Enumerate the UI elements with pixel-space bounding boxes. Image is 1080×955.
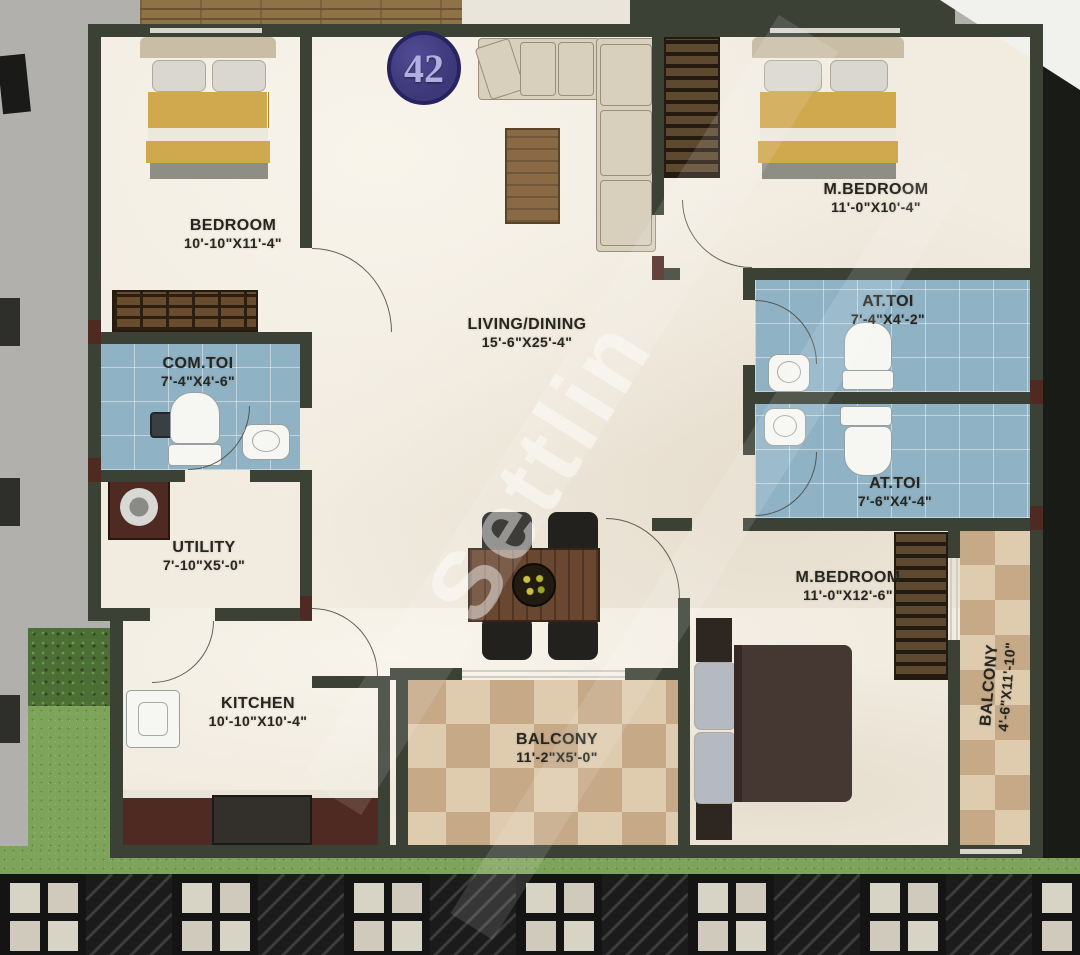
wall-utility-bottom-a xyxy=(110,608,150,621)
left-wall-stub xyxy=(0,478,20,526)
bed-sheet-stripe xyxy=(148,128,268,141)
wall-right xyxy=(1030,24,1043,858)
wall-corridor-toilets-a xyxy=(743,268,755,300)
room-dims: 11'-0"X10'-4" xyxy=(824,199,929,215)
pillow xyxy=(830,60,888,92)
shrub xyxy=(28,628,120,710)
coffee-table xyxy=(505,128,560,224)
top-light-strip xyxy=(462,0,630,24)
kitchen-counter-left xyxy=(122,798,212,845)
right-exterior-shadow xyxy=(1043,0,1080,858)
bed-blanket xyxy=(146,141,270,163)
bed-headboard xyxy=(696,618,732,662)
table-centerpiece xyxy=(512,563,556,607)
bed-blanket xyxy=(148,92,269,128)
room-label-bedroom: BEDROOM 10'-10"X11'-4" xyxy=(184,217,282,251)
room-name: M.BEDROOM xyxy=(796,569,901,587)
floor-plan: BEDROOM 10'-10"X11'-4" LIVING/DINING 15'… xyxy=(0,0,1080,955)
room-label-kitchen: KITCHEN 10'-10"X10'-4" xyxy=(209,695,308,729)
bed-footer xyxy=(150,163,268,179)
pillow xyxy=(694,662,736,730)
column-marker xyxy=(88,458,101,482)
wall-corridor-toilets-b xyxy=(743,365,755,455)
sofa-cushion xyxy=(600,44,652,106)
column-marker xyxy=(1030,506,1043,530)
wall-mbedbottom-top-stub xyxy=(652,518,692,531)
wall-comtoi-right xyxy=(300,332,312,408)
wall-mbed-balcony-b xyxy=(948,640,960,858)
washbasin-bowl xyxy=(252,430,280,452)
pillow xyxy=(152,60,206,92)
bed-sheet-stripe xyxy=(760,128,896,141)
toilet-tank xyxy=(842,370,894,390)
sofa-cushion xyxy=(600,180,652,246)
wall-living-mbed-divider xyxy=(652,24,664,215)
paving-pattern xyxy=(0,874,1080,955)
wall-attoi-divider xyxy=(743,392,1042,404)
wall-mbedtop-bottom-b xyxy=(752,268,1042,280)
sofa-cushion xyxy=(600,110,652,176)
bed-blanket xyxy=(734,645,852,802)
toilet-icon xyxy=(844,322,892,372)
dining-chair xyxy=(482,616,532,660)
dining-chair xyxy=(548,616,598,660)
room-dims: 10'-10"X10'-4" xyxy=(209,713,308,729)
wardrobe xyxy=(894,532,948,680)
bed xyxy=(752,37,904,58)
room-label-mbedroom-bottom: M.BEDROOM 11'-0"X12'-6" xyxy=(796,569,901,603)
room-name: AT.TOI xyxy=(851,293,925,311)
grass-patch-left xyxy=(28,706,120,848)
room-label-balcony-bottom: BALCONY 11'-2"X5'-0" xyxy=(516,731,598,765)
sofa-cushion xyxy=(558,42,594,96)
room-label-mbedroom-top: M.BEDROOM 11'-0"X10'-4" xyxy=(824,181,929,215)
kitchen-counter-right xyxy=(312,798,378,845)
window xyxy=(770,28,900,33)
room-label-utility: UTILITY 7'-10"X5'-0" xyxy=(163,539,245,573)
room-name: UTILITY xyxy=(163,539,245,557)
column-marker xyxy=(300,596,312,620)
room-dims: 11'-2"X5'-0" xyxy=(516,749,598,765)
wall-utility-bottom-b xyxy=(215,608,312,621)
room-label-at-toi-top: AT.TOI 7'-4"X4'-2" xyxy=(851,293,925,327)
left-wall-stub xyxy=(0,298,20,346)
room-label-at-toi-bottom: AT.TOI 7'-6"X4'-4" xyxy=(858,475,932,509)
wall-bedroom-bottom xyxy=(88,332,312,344)
kitchen-sink-basin xyxy=(138,702,168,736)
room-dims: 11'-0"X12'-6" xyxy=(796,587,901,603)
sliding-door xyxy=(462,670,625,678)
wardrobe xyxy=(664,37,720,178)
wall-bedroom-right xyxy=(300,24,312,248)
room-label-living: LIVING/DINING 15'-6"X25'-4" xyxy=(468,316,587,350)
bed-blanket xyxy=(760,92,896,128)
wall-kitchen-stub xyxy=(312,676,390,688)
room-name: BEDROOM xyxy=(184,217,282,235)
toilet-tank xyxy=(840,406,892,426)
top-neighbor-wall xyxy=(630,0,955,24)
washbasin-bowl xyxy=(773,415,797,437)
column-marker xyxy=(88,320,101,344)
column-marker xyxy=(652,256,664,280)
toilet-icon xyxy=(844,426,892,476)
stove xyxy=(212,795,312,845)
room-name: COM.TOI xyxy=(161,355,235,373)
wall-balcony-left xyxy=(396,668,408,858)
room-name: BALCONY xyxy=(516,731,598,749)
room-dims: 7'-10"X5'-0" xyxy=(163,557,245,573)
wall-bottom xyxy=(110,845,1042,858)
pillow xyxy=(694,732,736,804)
left-wall-stub xyxy=(0,695,20,743)
wall-kitchen-right xyxy=(378,688,390,858)
sofa-cushion xyxy=(520,42,556,96)
room-dims: 7'-4"X4'-2" xyxy=(851,311,925,327)
room-label-com-toi: COM.TOI 7'-4"X4'-6" xyxy=(161,355,235,389)
unit-number-badge: 42 xyxy=(387,31,461,105)
wall-mbedbottom-top xyxy=(743,518,1042,531)
bed-headboard xyxy=(696,800,732,840)
room-name: M.BEDROOM xyxy=(824,181,929,199)
wall-left-lower xyxy=(110,608,123,858)
window xyxy=(960,849,1022,854)
room-name: LIVING/DINING xyxy=(468,316,587,334)
pillow xyxy=(212,60,266,92)
bed-footer xyxy=(762,163,896,179)
wall-mbed-balcony-a xyxy=(948,518,960,558)
window xyxy=(150,28,262,33)
sliding-door xyxy=(950,558,958,640)
washing-machine-door xyxy=(120,488,158,526)
room-dims: 7'-4"X4'-6" xyxy=(161,373,235,389)
pillow xyxy=(764,60,822,92)
washbasin-bowl xyxy=(777,361,801,383)
wall-balcony-right xyxy=(678,598,690,858)
wall-comtoi-bottom-a xyxy=(88,470,185,482)
bed-blanket xyxy=(758,141,898,163)
room-dims: 7'-6"X4'-4" xyxy=(858,493,932,509)
room-dims: 15'-6"X25'-4" xyxy=(468,334,587,350)
room-name: KITCHEN xyxy=(209,695,308,713)
room-name: AT.TOI xyxy=(858,475,932,493)
bed xyxy=(140,37,276,58)
dresser xyxy=(112,290,258,332)
column-marker xyxy=(1030,380,1043,404)
room-dims: 10'-10"X11'-4" xyxy=(184,235,282,251)
